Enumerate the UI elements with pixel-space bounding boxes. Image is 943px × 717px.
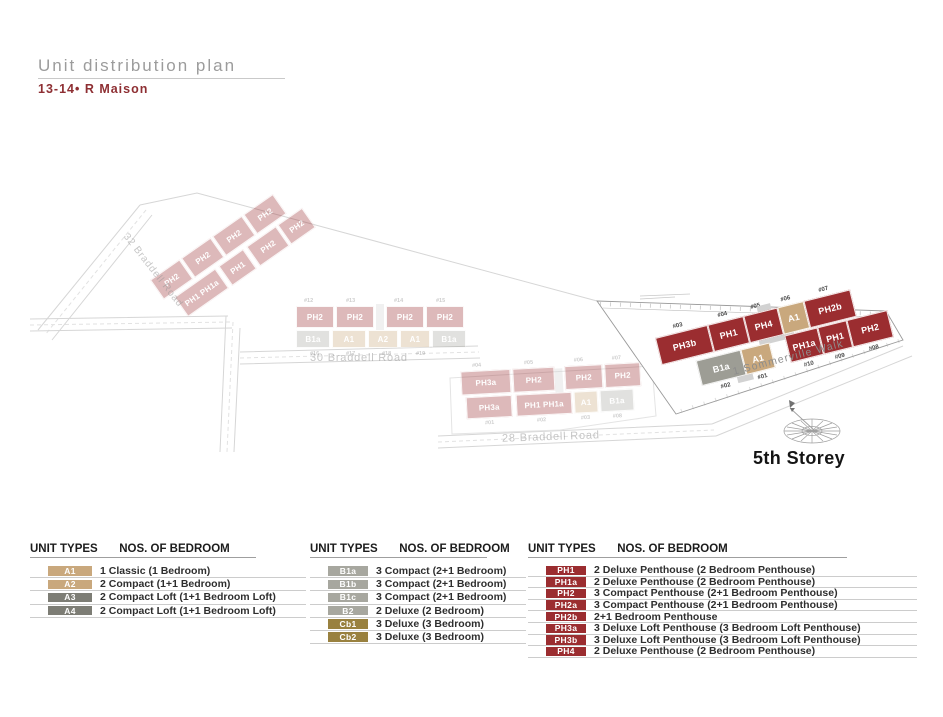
unit-type-desc: 3 Compact (2+1 Bedroom)	[376, 565, 506, 577]
unit-number: #19	[416, 351, 425, 357]
unit-type-desc: 1 Classic (1 Bedroom)	[100, 565, 210, 577]
unit-type-swatch: PH2a	[546, 600, 586, 610]
unit-type-swatch: PH1a	[546, 577, 586, 587]
unit-type-swatch: B1b	[328, 580, 368, 590]
unit-label: PH2	[614, 370, 631, 380]
unit-type-desc: 2 Deluxe (2 Bedroom)	[376, 605, 484, 617]
legend-row: B1a3 Compact (2+1 Bedroom)	[310, 565, 526, 578]
unit-block: PH2	[296, 306, 334, 328]
legend-row: Cb13 Deluxe (3 Bedroom)	[310, 618, 526, 631]
unit-label: PH1	[228, 259, 246, 276]
legend-header: UNIT TYPES NOS. OF BEDROOM	[30, 543, 256, 558]
unit-block: A1	[574, 390, 599, 413]
legend-header-unit-types: UNIT TYPES	[528, 543, 614, 555]
core-connector	[376, 304, 384, 332]
unit-distribution-page: Unit distribution plan 13-14• R Maison	[0, 0, 943, 717]
legend-column-a: UNIT TYPES NOS. OF BEDROOM A11 Classic (…	[30, 543, 306, 618]
unit-label: PH2	[225, 228, 243, 245]
unit-number: #01	[485, 420, 494, 426]
unit-type-desc: 2 Deluxe Penthouse (2 Bedroom Penthouse)	[594, 564, 815, 576]
unit-block: B1a	[432, 330, 466, 348]
unit-type-swatch: PH1	[546, 566, 586, 576]
unit-number: #12	[304, 298, 313, 304]
unit-label: A1	[410, 335, 421, 344]
unit-type-desc: 3 Deluxe Loft Penthouse (3 Bedroom Loft …	[594, 634, 861, 646]
unit-block: A1	[400, 330, 430, 348]
unit-number: #13	[346, 298, 355, 304]
unit-type-desc: 2 Compact (1+1 Bedroom)	[100, 578, 230, 590]
unit-label: PH2	[347, 313, 363, 322]
unit-type-swatch: PH4	[546, 647, 586, 657]
unit-number: #03	[581, 415, 590, 421]
unit-label: PH2	[307, 313, 323, 322]
unit-label: PH2	[256, 206, 274, 223]
unit-block: PH1 PH1a	[516, 392, 573, 417]
legend-header: UNIT TYPES NOS. OF BEDROOM	[310, 543, 487, 558]
legend-row: PH42 Deluxe Penthouse (2 Bedroom Penthou…	[528, 646, 917, 658]
unit-type-desc: 2 Compact Loft (1+1 Bedroom Loft)	[100, 605, 276, 617]
legend-header-bedrooms: NOS. OF BEDROOM	[617, 543, 728, 555]
unit-type-desc: 2 Deluxe Penthouse (2 Bedroom Penthouse)	[594, 645, 815, 657]
unit-label: PH2	[259, 238, 277, 255]
unit-label: B1a	[712, 361, 731, 375]
unit-number: #02	[537, 417, 546, 423]
unit-block: PH2	[512, 367, 555, 393]
unit-type-swatch: B2	[328, 606, 368, 616]
unit-block: PH2	[564, 364, 603, 390]
unit-block: A1	[332, 330, 366, 348]
unit-block: PH2	[386, 306, 424, 328]
unit-type-desc: 3 Compact Penthouse (2+1 Bedroom Penthou…	[594, 599, 838, 611]
legend-row: A11 Classic (1 Bedroom)	[30, 565, 306, 578]
legend-row: B1b3 Compact (2+1 Bedroom)	[310, 578, 526, 591]
unit-label: PH2	[287, 218, 305, 235]
unit-block: B1a	[296, 330, 330, 348]
unit-type-swatch: PH3a	[546, 624, 586, 634]
unit-label: B1a	[305, 335, 320, 344]
unit-label: PH2	[397, 313, 413, 322]
legend-header-bedrooms: NOS. OF BEDROOM	[399, 543, 510, 555]
unit-number: #06	[574, 357, 583, 363]
compass-icon	[784, 400, 840, 443]
legend-row: PH1a2 Deluxe Penthouse (2 Bedroom Pentho…	[528, 577, 917, 589]
unit-type-swatch: Cb1	[328, 619, 368, 629]
unit-label: PH4	[754, 318, 774, 332]
legend-column-b: UNIT TYPES NOS. OF BEDROOM B1a3 Compact …	[310, 543, 526, 644]
unit-type-swatch: A4	[48, 606, 92, 616]
unit-type-swatch: A2	[48, 580, 92, 590]
unit-label: PH3a	[475, 377, 496, 387]
unit-type-swatch: A1	[48, 566, 92, 576]
unit-label: PH1 PH1a	[524, 399, 564, 410]
unit-block: PH2	[426, 306, 464, 328]
unit-type-swatch: PH2	[546, 589, 586, 599]
unit-type-swatch: B1c	[328, 593, 368, 603]
unit-type-desc: 3 Compact (2+1 Bedroom)	[376, 578, 506, 590]
unit-type-desc: 2 Deluxe Penthouse (2 Bedroom Penthouse)	[594, 576, 815, 588]
legend-row: Cb23 Deluxe (3 Bedroom)	[310, 631, 526, 644]
legend-row: PH3b3 Deluxe Loft Penthouse (3 Bedroom L…	[528, 635, 917, 647]
unit-type-desc: 2+1 Bedroom Penthouse	[594, 611, 717, 623]
unit-number: #07	[612, 355, 621, 361]
unit-type-swatch: PH3b	[546, 635, 586, 645]
unit-label: PH2	[526, 375, 543, 385]
legend-row: PH3a3 Deluxe Loft Penthouse (3 Bedroom L…	[528, 623, 917, 635]
unit-type-desc: 3 Compact (2+1 Bedroom)	[376, 591, 506, 603]
unit-type-desc: 3 Deluxe (3 Bedroom)	[376, 618, 484, 630]
unit-block: PH2	[336, 306, 374, 328]
cluster-30-braddell: #12 #13 #14 #15 PH2 PH2 PH2 PH2 B1a A1 A…	[290, 298, 475, 360]
legend-header-bedrooms: NOS. OF BEDROOM	[119, 543, 230, 555]
unit-block: PH2	[604, 362, 641, 388]
cluster-28-braddell: #04 #05 #06 #07 PH3a PH2 PH2 PH2 PH3a PH…	[452, 355, 660, 432]
unit-label: PH1	[719, 327, 739, 341]
unit-number: #05	[524, 360, 533, 366]
unit-block: PH3a	[466, 395, 513, 419]
legend-header: UNIT TYPES NOS. OF BEDROOM	[528, 543, 847, 558]
unit-label: PH2b	[817, 301, 843, 316]
unit-type-swatch: Cb2	[328, 632, 368, 642]
unit-label: A1	[787, 312, 801, 325]
legend-row: PH2b2+1 Bedroom Penthouse	[528, 611, 917, 623]
storey-label: 5th Storey	[753, 448, 845, 469]
legend-row: B1c3 Compact (2+1 Bedroom)	[310, 591, 526, 604]
unit-label: B1a	[609, 396, 625, 406]
unit-block: B1a	[599, 389, 634, 413]
legend-row: A42 Compact Loft (1+1 Bedroom Loft)	[30, 605, 306, 618]
unit-label: B1a	[441, 335, 456, 344]
legend-column-ph: UNIT TYPES NOS. OF BEDROOM PH12 Deluxe P…	[528, 543, 917, 658]
unit-type-swatch: PH2b	[546, 612, 586, 622]
legend-row: B22 Deluxe (2 Bedroom)	[310, 605, 526, 618]
unit-block: A2	[368, 330, 398, 348]
unit-label: PH3b	[672, 337, 698, 352]
unit-number: #15	[436, 298, 445, 304]
unit-type-desc: 3 Deluxe Loft Penthouse (3 Bedroom Loft …	[594, 622, 861, 634]
unit-type-swatch: A3	[48, 593, 92, 603]
legend-row: PH2a3 Compact Penthouse (2+1 Bedroom Pen…	[528, 600, 917, 612]
legend-header-unit-types: UNIT TYPES	[30, 543, 116, 555]
road-label-30-braddell: 30 Braddell Road	[310, 352, 408, 364]
unit-type-swatch: B1a	[328, 566, 368, 576]
unit-label: PH2	[194, 249, 212, 266]
unit-label: PH3a	[479, 402, 500, 412]
unit-type-desc: 2 Compact Loft (1+1 Bedroom Loft)	[100, 591, 276, 603]
unit-label: A1	[581, 397, 592, 407]
unit-number: #14	[394, 298, 403, 304]
unit-type-desc: 3 Deluxe (3 Bedroom)	[376, 631, 484, 643]
unit-label: PH2	[437, 313, 453, 322]
legend-row: A22 Compact (1+1 Bedroom)	[30, 578, 306, 591]
legend-row: PH12 Deluxe Penthouse (2 Bedroom Penthou…	[528, 565, 917, 577]
legend-row: A32 Compact Loft (1+1 Bedroom Loft)	[30, 591, 306, 604]
unit-block: PH3a	[460, 369, 511, 396]
unit-number: #08	[613, 413, 622, 419]
unit-type-desc: 3 Compact Penthouse (2+1 Bedroom Penthou…	[594, 587, 838, 599]
unit-label: PH2	[575, 372, 592, 382]
legend-row: PH23 Compact Penthouse (2+1 Bedroom Pent…	[528, 588, 917, 600]
unit-number: #04	[472, 362, 481, 368]
legend-header-unit-types: UNIT TYPES	[310, 543, 396, 555]
unit-label: A2	[378, 335, 389, 344]
unit-label: A1	[344, 335, 355, 344]
